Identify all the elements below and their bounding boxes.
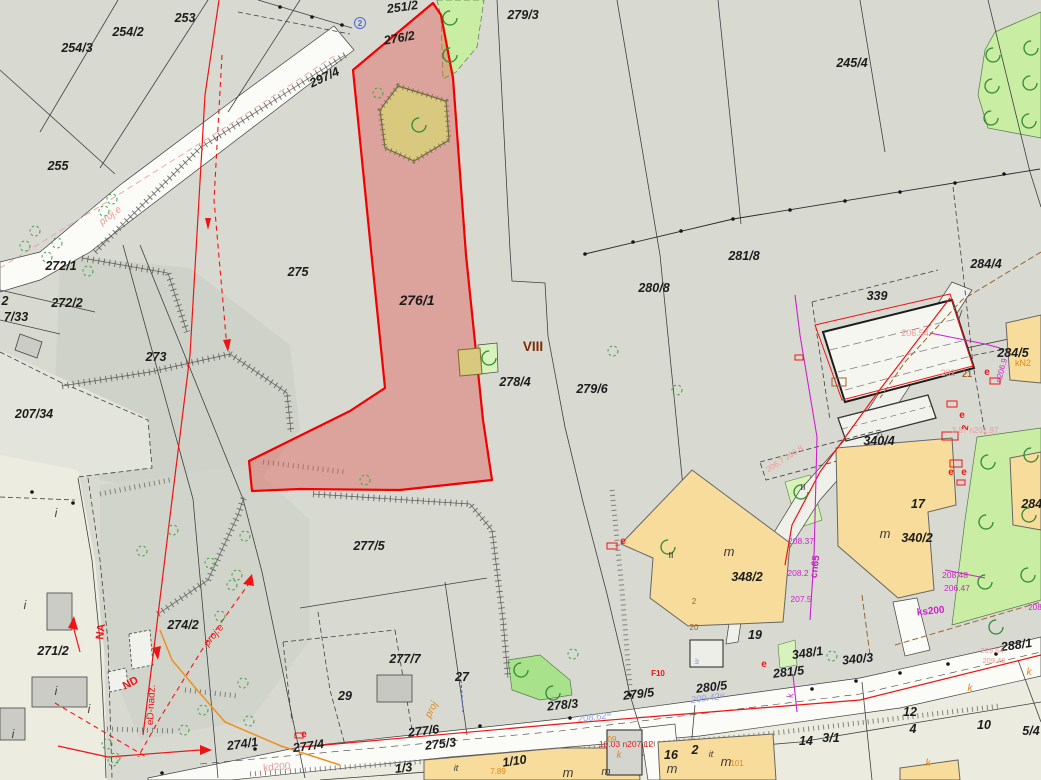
map-label: 21: [962, 369, 972, 379]
map-label: 340/2: [901, 531, 932, 545]
map-label: 254/2: [111, 25, 143, 39]
survey-dot: [278, 5, 282, 9]
map-label: 2: [692, 597, 697, 606]
survey-dot: [340, 23, 344, 27]
map-label: kN2: [1015, 358, 1031, 368]
map-label: e: [301, 729, 307, 740]
map-label: i: [55, 506, 58, 520]
map-label: 339: [867, 289, 888, 303]
map-label: m: [724, 544, 735, 559]
map-label: 208.37: [788, 536, 814, 546]
map-label: 208.2: [787, 568, 809, 578]
survey-dot: [71, 501, 75, 505]
map-label: m: [563, 765, 574, 780]
map-label: 209.46: [983, 656, 1006, 665]
map-label: 16: [664, 748, 679, 762]
survey-dot: [898, 190, 902, 194]
map-label: 275: [287, 265, 310, 279]
survey-dot: [953, 181, 957, 185]
map-label: 276/1: [398, 292, 434, 308]
map-label: it: [709, 749, 714, 759]
survey-dot: [568, 716, 572, 720]
map-label: 279/3: [506, 8, 538, 22]
map-label: 277/5: [352, 539, 385, 553]
map-label: 280/8: [637, 281, 669, 295]
map-label: 2: [358, 19, 363, 28]
map-label: 206.54: [901, 328, 929, 338]
map-label: F10: [651, 669, 665, 678]
map-label: 17: [911, 497, 926, 511]
map-label: 207/34: [14, 407, 53, 421]
map-label: kd200: [263, 761, 291, 774]
map-label: 3/1: [822, 731, 839, 745]
map-label: 272/1: [44, 259, 76, 273]
map-label: II: [801, 482, 806, 492]
building-khaki-small: [458, 348, 482, 376]
map-label: NA: [94, 623, 108, 640]
survey-dot: [731, 217, 735, 221]
map-label: 284/4: [969, 257, 1001, 271]
map-label: 254/3: [60, 41, 92, 55]
map-label: eD-nadz.: [145, 684, 158, 725]
map-label: 208.48: [942, 570, 968, 580]
map-label: 281/8: [727, 249, 759, 263]
map-label: m: [601, 766, 610, 778]
map-label: 206.47: [944, 583, 970, 593]
survey-dot: [631, 240, 635, 244]
survey-dot: [679, 229, 683, 233]
map-label: 284/1: [1020, 497, 1041, 511]
map-label: 277/7: [388, 652, 421, 666]
map-label: e: [984, 367, 990, 378]
map-label: VIII: [523, 339, 543, 354]
map-label: 14: [799, 734, 813, 748]
map-label: 29: [337, 689, 352, 703]
map-label: 20: [690, 623, 699, 632]
map-label: 278/4: [498, 375, 530, 389]
cadastral-map-viewport[interactable]: 276/1: [0, 0, 1041, 780]
survey-dot: [810, 687, 814, 691]
survey-dot: [30, 490, 34, 494]
map-label: 207.5: [790, 594, 812, 604]
map-label: 273: [145, 350, 167, 364]
map-label: 340/4: [863, 434, 894, 448]
map-label: 101: [730, 759, 744, 768]
map-label: m: [880, 526, 891, 541]
map-label: 255: [47, 159, 70, 173]
survey-dot: [854, 679, 858, 683]
map-label: i: [88, 702, 91, 716]
map-label: e: [761, 659, 767, 670]
map-label: 19: [748, 628, 762, 642]
map-label: 245/4: [835, 56, 867, 70]
map-label: 348/2: [731, 570, 762, 584]
survey-dot: [843, 199, 847, 203]
survey-dot: [478, 724, 482, 728]
map-label: e: [961, 467, 967, 478]
map-label: 12: [903, 705, 917, 719]
map-label: i: [24, 598, 27, 612]
map-label: 274/2: [166, 618, 198, 632]
map-label: it: [454, 763, 459, 773]
map-label: 10: [977, 718, 991, 732]
map-label: e: [948, 467, 954, 478]
map-label: 253: [174, 11, 196, 25]
survey-dot: [946, 662, 950, 666]
survey-dot: [898, 671, 902, 675]
map-label: m: [667, 761, 678, 776]
map-label: 209.64: [981, 646, 1004, 655]
map-label: 1/3: [394, 760, 413, 776]
map-label: 2: [691, 743, 699, 757]
map-label: e: [959, 410, 965, 421]
map-label: 3.87 n201.97: [952, 426, 999, 435]
survey-dot: [1002, 172, 1006, 176]
map-label: 279/6: [575, 382, 608, 396]
map-label: 4: [909, 722, 917, 736]
map-label: 2: [1, 294, 9, 308]
map-label: e: [620, 536, 626, 547]
map-label: 271/2: [36, 644, 68, 658]
map-label: 7.89: [490, 767, 506, 776]
map-label: II: [669, 550, 674, 560]
map-label: i: [12, 727, 15, 741]
survey-dot: [788, 208, 792, 212]
map-label: 27: [454, 670, 470, 684]
map-label: 7/33: [4, 310, 28, 324]
survey-dot: [160, 771, 164, 775]
map-label: 5/4: [1022, 724, 1039, 738]
survey-dot: [310, 15, 314, 19]
survey-dot: [583, 252, 587, 256]
cadastral-map-canvas[interactable]: 253254/2254/3255251/2276/2297/4279/3245/…: [0, 0, 1041, 780]
map-label: 202: [940, 368, 955, 378]
map-label: 272/2: [50, 296, 82, 310]
map-label: 208: [1028, 603, 1041, 612]
map-label: i: [55, 684, 58, 698]
map-label: 09: [608, 735, 617, 744]
